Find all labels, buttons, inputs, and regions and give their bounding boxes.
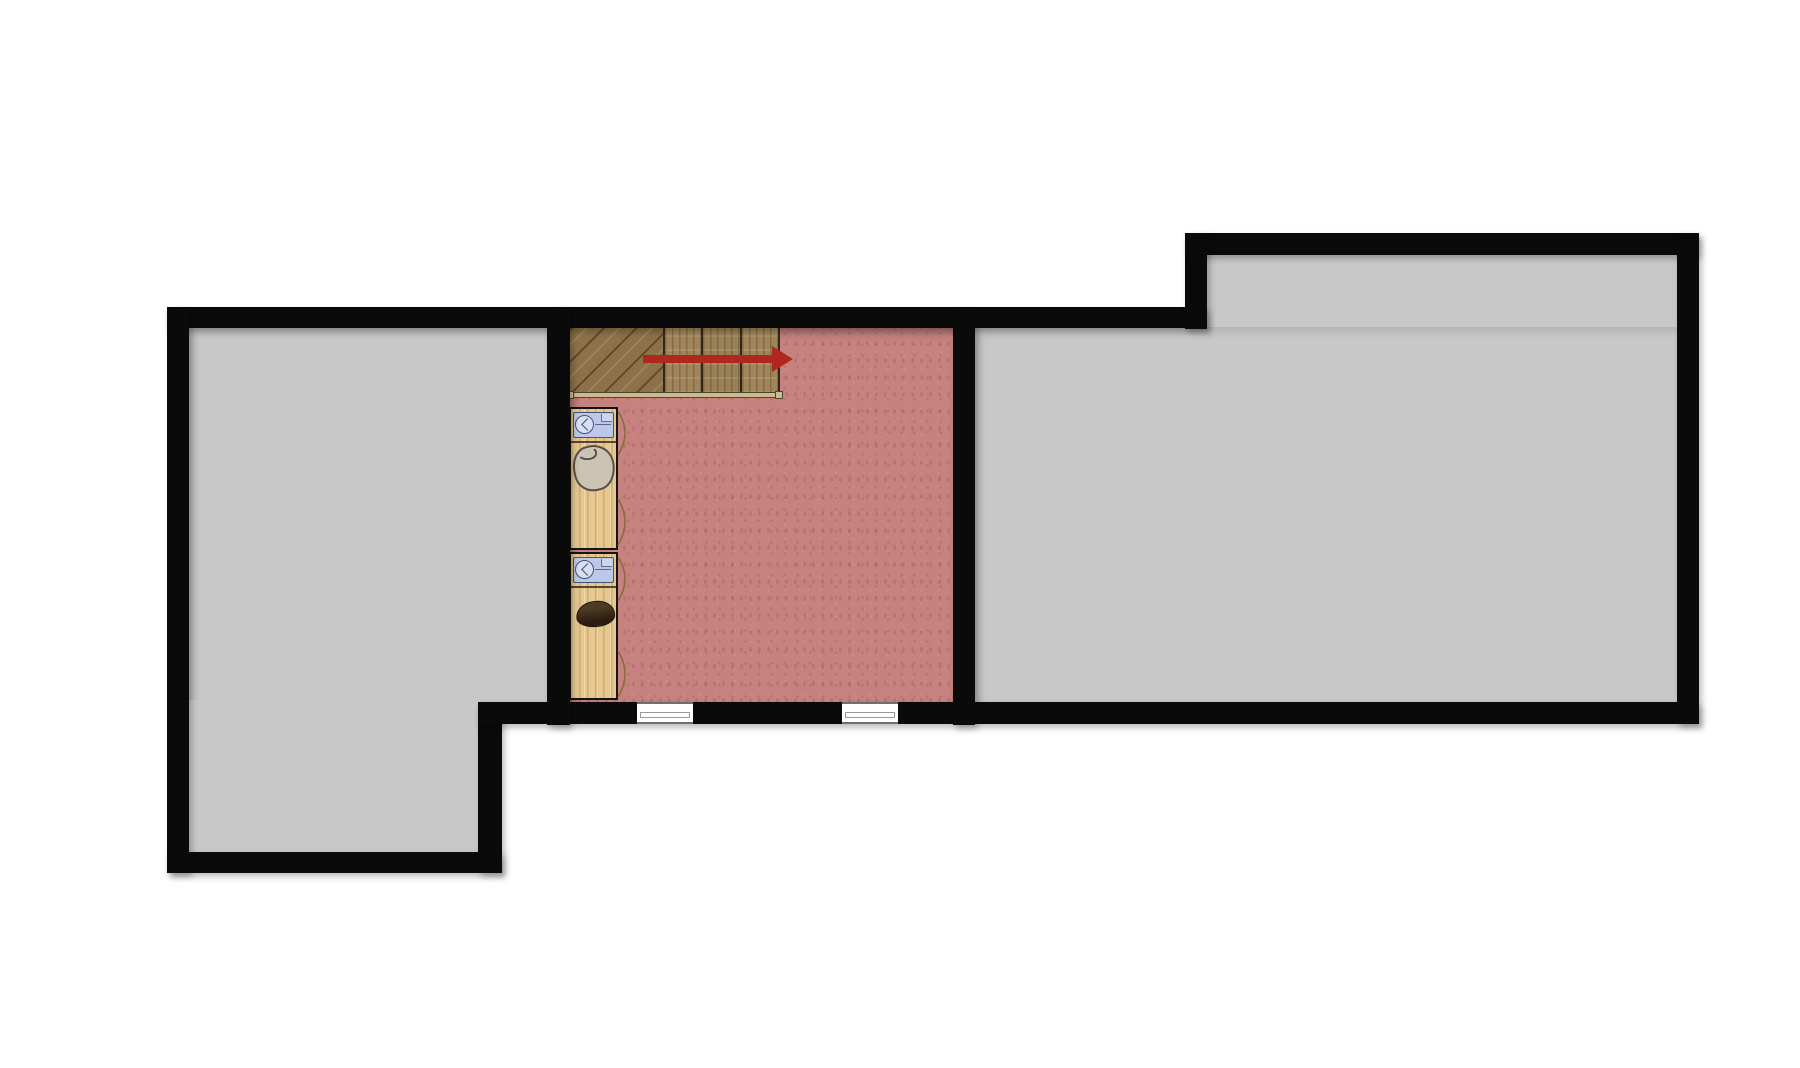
wall-divider-left-center xyxy=(547,307,570,725)
shirt-placket xyxy=(595,569,611,570)
window-1[interactable] xyxy=(637,702,693,724)
shelf-divider xyxy=(571,586,616,588)
sweater-item[interactable] xyxy=(568,441,620,496)
floor-plan-canvas xyxy=(0,0,1800,1068)
arrow-head xyxy=(772,346,793,372)
shirt-fold xyxy=(601,559,612,567)
left-room-floor-lower[interactable] xyxy=(189,700,478,852)
shirt-fold xyxy=(601,414,612,422)
wall-right-room-top xyxy=(1185,233,1698,255)
wall-bottom-left xyxy=(167,852,502,873)
shirt-item[interactable] xyxy=(573,412,614,438)
stair-rail xyxy=(570,392,780,398)
left-room-floor-upper[interactable] xyxy=(189,328,547,703)
door-swing-arc xyxy=(617,556,633,602)
shirt-item[interactable] xyxy=(573,557,614,583)
hat-item[interactable] xyxy=(575,599,617,630)
wall-notch-vertical xyxy=(1185,233,1207,329)
window-glass xyxy=(845,712,895,718)
wall-top xyxy=(167,307,1207,328)
wall-left xyxy=(167,307,189,873)
door-swing-arc xyxy=(617,650,633,698)
right-room-floor-main[interactable] xyxy=(975,327,1677,703)
door-swing-arc xyxy=(617,410,633,456)
wardrobe-1[interactable] xyxy=(569,407,618,550)
wardrobe-2[interactable] xyxy=(569,552,618,700)
shirt-collar xyxy=(575,415,594,434)
stair-rail-cap-right xyxy=(775,391,783,399)
window-2[interactable] xyxy=(842,702,898,724)
window-glass xyxy=(640,712,690,718)
shelf-divider xyxy=(571,441,616,443)
right-room-floor-notch[interactable] xyxy=(1207,255,1677,330)
wall-right xyxy=(1677,233,1699,724)
door-swing-arc xyxy=(617,498,633,546)
shirt-collar xyxy=(575,560,594,579)
shirt-placket xyxy=(595,424,611,425)
wall-step-vertical xyxy=(478,702,502,873)
wall-divider-center-right xyxy=(953,307,975,725)
stair-direction-arrow-icon xyxy=(643,346,793,372)
arrow-shaft xyxy=(643,355,772,363)
